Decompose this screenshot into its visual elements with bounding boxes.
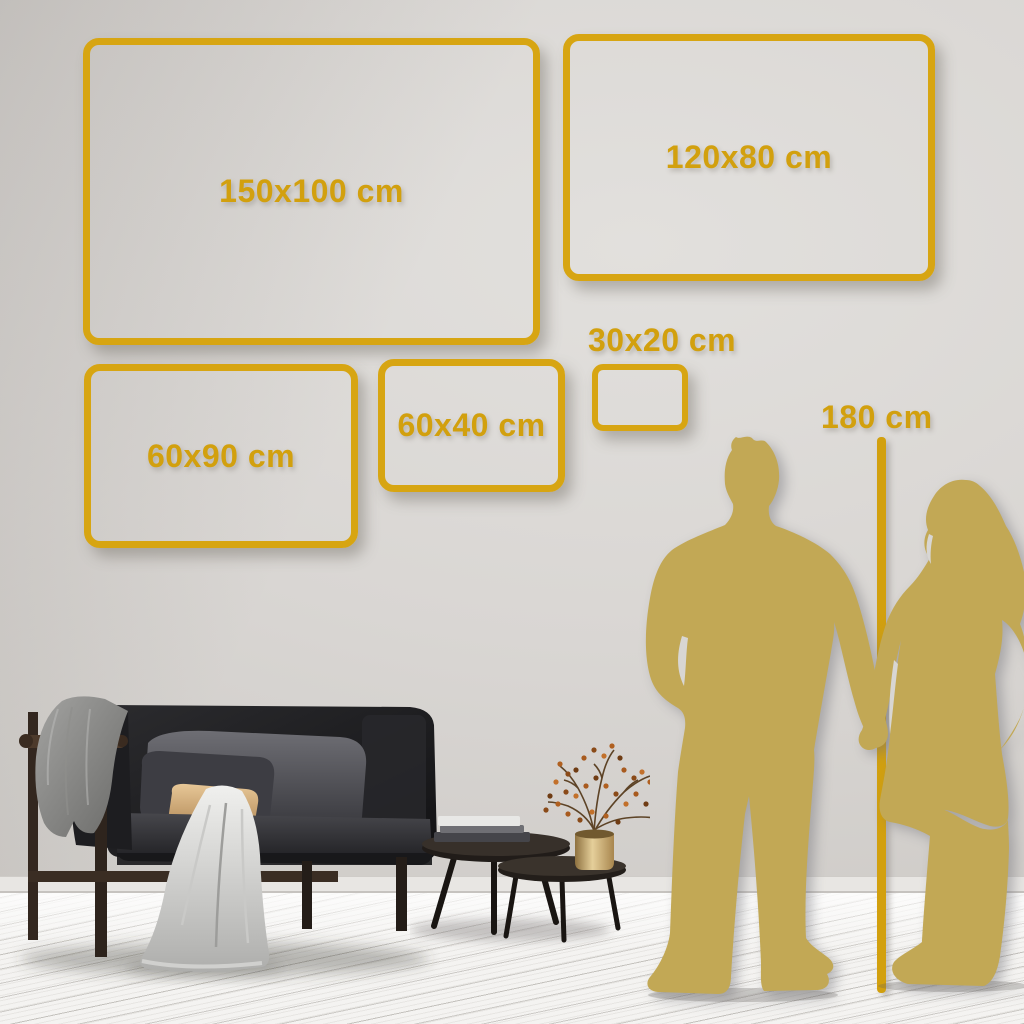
size-label-60x90: 60x90 cm <box>147 438 295 475</box>
book-stack <box>434 816 530 842</box>
size-label-120x80: 120x80 cm <box>666 139 832 176</box>
sofa-illustration <box>10 685 440 1005</box>
size-frame-120x80: 120x80 cm <box>563 34 935 281</box>
size-label-30x20: 30x20 cm <box>588 322 736 359</box>
size-frame-150x100: 150x100 cm <box>83 38 540 345</box>
coffee-tables-illustration <box>410 730 650 950</box>
plant-branches <box>548 750 650 832</box>
brass-vase <box>575 830 614 871</box>
size-frame-60x40: 60x40 cm <box>378 359 565 492</box>
size-label-150x100: 150x100 cm <box>219 173 404 210</box>
man-silhouette <box>646 437 888 994</box>
large-coffee-table <box>422 832 570 932</box>
size-guide-scene: 150x100 cm 120x80 cm 60x90 cm 60x40 cm 3… <box>0 0 1024 1024</box>
size-label-60x40: 60x40 cm <box>397 407 545 444</box>
couple-silhouette <box>628 428 1024 1013</box>
size-frame-30x20 <box>592 364 688 431</box>
reference-height-label: 180 cm <box>821 399 933 436</box>
size-frame-60x90: 60x90 cm <box>84 364 358 548</box>
